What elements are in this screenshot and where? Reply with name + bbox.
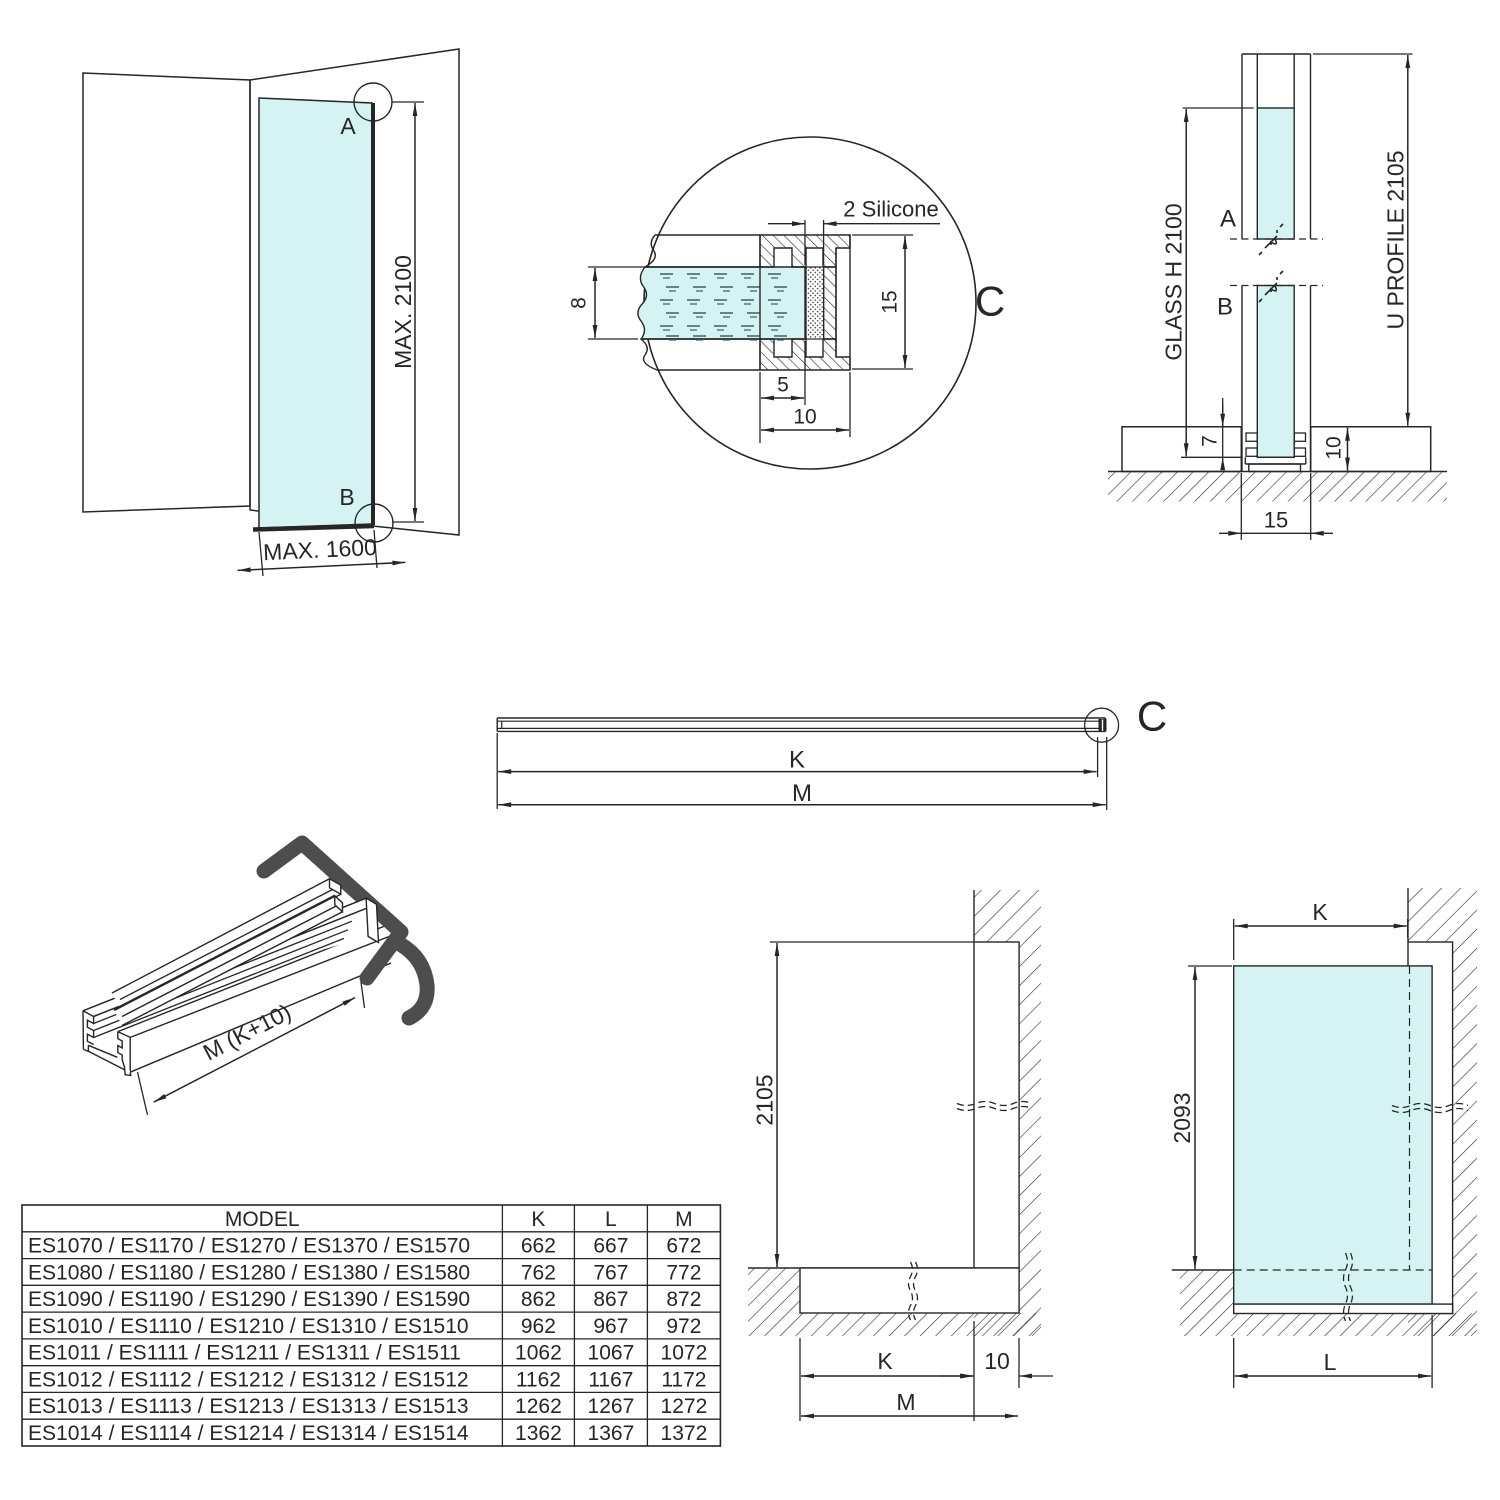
svg-text:15: 15 — [1264, 508, 1288, 533]
svg-text:662: 662 — [521, 1235, 556, 1258]
svg-text:767: 767 — [593, 1261, 628, 1284]
svg-text:2093: 2093 — [1169, 1092, 1195, 1143]
svg-text:U PROFILE 2105: U PROFILE 2105 — [1383, 151, 1409, 330]
svg-text:10: 10 — [984, 1348, 1010, 1374]
svg-text:862: 862 — [521, 1288, 556, 1311]
svg-text:10: 10 — [793, 405, 816, 428]
svg-text:1267: 1267 — [588, 1395, 635, 1418]
svg-text:ES1014 / ES1114 / ES1214 / ES1: ES1014 / ES1114 / ES1214 / ES1314 / ES15… — [28, 1422, 469, 1445]
svg-text:1062: 1062 — [515, 1342, 562, 1365]
svg-text:ES1090 / ES1190 / ES1290 / ES1: ES1090 / ES1190 / ES1290 / ES1390 / ES15… — [28, 1288, 470, 1311]
svg-text:2 Silicone: 2 Silicone — [843, 197, 938, 222]
svg-text:A: A — [340, 113, 356, 139]
svg-text:ES1011 / ES1111 / ES1211 / ES1: ES1011 / ES1111 / ES1211 / ES1311 / ES15… — [28, 1342, 461, 1365]
svg-text:K: K — [531, 1208, 545, 1231]
svg-text:962: 962 — [521, 1315, 556, 1338]
svg-text:GLASS H 2100: GLASS H 2100 — [1161, 203, 1187, 360]
svg-text:ES1010 / ES1110 / ES1210 / ES1: ES1010 / ES1110 / ES1210 / ES1310 / ES15… — [28, 1315, 469, 1338]
svg-text:967: 967 — [593, 1315, 628, 1338]
svg-text:M: M — [675, 1208, 693, 1231]
svg-text:M: M — [896, 1389, 915, 1415]
svg-text:1067: 1067 — [588, 1342, 635, 1365]
svg-text:1262: 1262 — [515, 1395, 562, 1418]
svg-text:667: 667 — [593, 1235, 628, 1258]
svg-text:L: L — [1324, 1349, 1337, 1375]
svg-text:7: 7 — [1198, 435, 1221, 447]
svg-text:8: 8 — [567, 297, 590, 309]
svg-text:ES1013 / ES1113 / ES1213 / ES1: ES1013 / ES1113 / ES1213 / ES1313 / ES15… — [28, 1395, 469, 1418]
svg-text:A: A — [1220, 205, 1236, 232]
svg-text:C: C — [1137, 693, 1167, 740]
svg-text:672: 672 — [666, 1235, 701, 1258]
svg-text:MAX. 1600: MAX. 1600 — [263, 534, 378, 565]
svg-text:ES1080 / ES1180 / ES1280 / ES1: ES1080 / ES1180 / ES1280 / ES1380 / ES15… — [28, 1261, 470, 1284]
svg-text:1367: 1367 — [588, 1422, 635, 1445]
svg-text:1162: 1162 — [516, 1368, 561, 1391]
svg-text:872: 872 — [666, 1288, 701, 1311]
svg-text:C: C — [975, 278, 1005, 325]
svg-text:MODEL: MODEL — [225, 1208, 300, 1231]
svg-text:1372: 1372 — [661, 1422, 708, 1445]
svg-text:10: 10 — [1322, 436, 1345, 459]
svg-text:L: L — [605, 1208, 617, 1231]
svg-text:1362: 1362 — [515, 1422, 562, 1445]
svg-text:ES1012 / ES1112 / ES1212 / ES1: ES1012 / ES1112 / ES1212 / ES1312 / ES15… — [28, 1368, 469, 1391]
svg-text:K: K — [1312, 899, 1328, 925]
svg-text:762: 762 — [521, 1261, 556, 1284]
svg-text:772: 772 — [666, 1261, 701, 1284]
svg-text:MAX. 2100: MAX. 2100 — [390, 255, 416, 369]
svg-text:867: 867 — [593, 1288, 628, 1311]
svg-text:ES1070 / ES1170 / ES1270 / ES1: ES1070 / ES1170 / ES1270 / ES1370 / ES15… — [28, 1235, 470, 1258]
svg-text:B: B — [1217, 293, 1233, 320]
svg-text:B: B — [339, 484, 354, 510]
svg-text:1072: 1072 — [661, 1342, 708, 1365]
svg-text:1167: 1167 — [588, 1368, 633, 1391]
svg-text:5: 5 — [777, 373, 789, 396]
svg-text:K: K — [877, 1348, 893, 1374]
svg-text:K: K — [789, 746, 805, 773]
svg-text:2105: 2105 — [752, 1074, 778, 1125]
svg-text:15: 15 — [878, 290, 901, 313]
svg-text:1272: 1272 — [661, 1395, 708, 1418]
svg-text:M: M — [792, 780, 812, 807]
svg-text:1172: 1172 — [661, 1368, 706, 1391]
svg-text:972: 972 — [666, 1315, 701, 1338]
